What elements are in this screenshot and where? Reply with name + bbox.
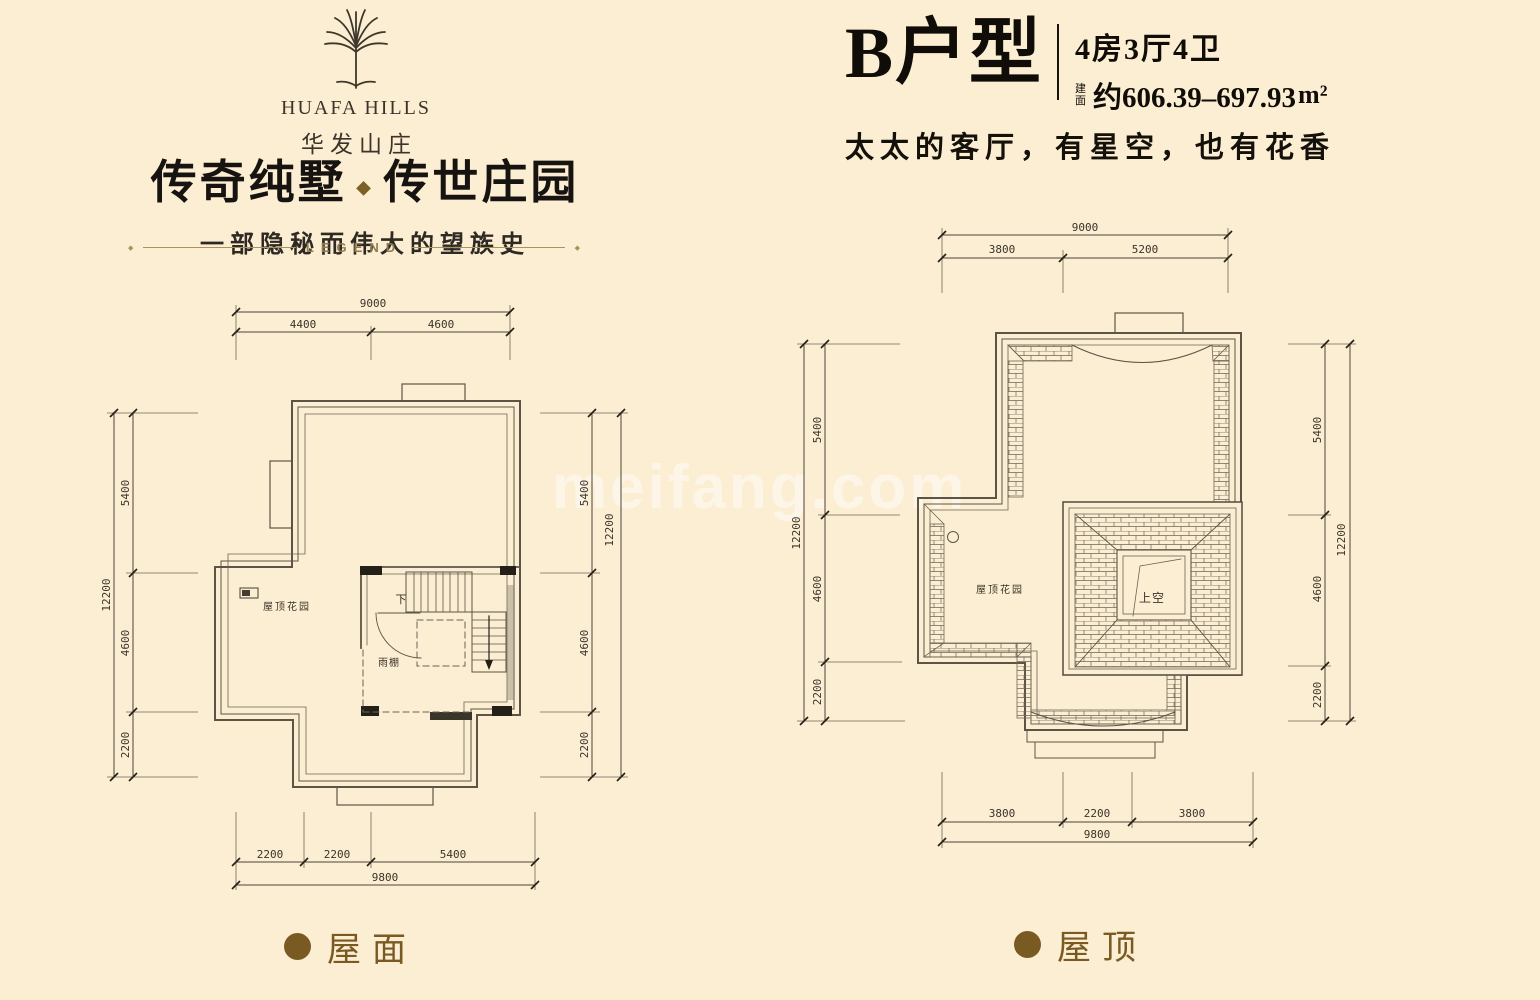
bullet-dot-icon [1014, 931, 1041, 958]
dim-label: 2200 [578, 732, 591, 759]
porch-step-2 [1035, 742, 1155, 758]
dim-label: 2200 [1084, 807, 1111, 820]
right-plan: 屋顶花园 上空 [918, 313, 1242, 758]
vertical-divider [1057, 24, 1059, 100]
unit-tagline: 太太的客厅，有星空，也有花香 [845, 124, 1335, 166]
void-label: 上空 [1139, 591, 1165, 605]
dim-label: 3800 [989, 243, 1016, 256]
slogan-left: 传奇纯墅 [151, 157, 347, 208]
skylight-mark-fill [242, 590, 250, 596]
brand-name-en: HUAFA HILLS [250, 97, 462, 120]
bullet-dot-icon [284, 933, 311, 960]
area-value: 约606.39–697.93 [1093, 74, 1296, 116]
dim-label: 4600 [119, 630, 132, 657]
porch-step-1 [1027, 730, 1163, 742]
unit-area: 建面 约606.39–697.93 m² [1075, 74, 1327, 116]
stair-arrow-head [485, 660, 493, 670]
right-plan-caption-text: 屋顶 [1057, 920, 1147, 969]
unit-rooms: 4房3厅4卫 [1075, 24, 1327, 68]
right-plan-caption: 屋顶 [1014, 920, 1147, 969]
dim-label: 9000 [360, 297, 387, 310]
dim-label: 2200 [119, 732, 132, 759]
top-eave-arc [1072, 345, 1212, 363]
area-unit: m² [1298, 80, 1327, 110]
flourish-icon: ◆ [128, 244, 133, 252]
stair-wall-hatch [507, 585, 514, 700]
rule-line [412, 247, 565, 248]
dim-label: 3800 [989, 807, 1016, 820]
legend-label: LEGEND [306, 240, 402, 255]
dim-label: 2200 [257, 848, 284, 861]
left-plan-side-bay [270, 461, 292, 528]
dim-label: 2200 [324, 848, 351, 861]
flourish-icon: ◆ [575, 244, 580, 252]
drain-circle [948, 532, 959, 543]
dim-label: 9800 [372, 871, 399, 884]
dim-label: 5400 [811, 417, 824, 444]
unit-specs: 4房3厅4卫 建面 约606.39–697.93 m² [1075, 14, 1327, 116]
right-plan-top-bump [1115, 313, 1183, 333]
column [492, 706, 512, 716]
dim-label: 5400 [1311, 417, 1324, 444]
unit-name: B户型 [845, 14, 1043, 93]
canopy-dashed-box [417, 620, 465, 666]
dim-label: 5400 [119, 480, 132, 507]
diamond-ornament-icon: ◆ [357, 177, 374, 197]
dim-label: 4600 [428, 318, 455, 331]
column [360, 566, 382, 575]
dim-label: 12200 [790, 516, 803, 549]
wall-fill [430, 712, 472, 720]
dim-label: 2200 [1311, 682, 1324, 709]
dim-label: 4400 [290, 318, 317, 331]
door-swing-arc [376, 613, 421, 658]
dim-label: 2200 [811, 679, 824, 706]
dim-label: 12200 [603, 513, 616, 546]
dim-label: 9800 [1084, 828, 1111, 841]
stair-room [360, 566, 520, 720]
left-plan-caption: 屋面 [284, 922, 417, 971]
dim-label: 4600 [578, 630, 591, 657]
legend-rule: ◆ LEGEND ◆ [128, 240, 580, 255]
column [500, 566, 516, 575]
right-garden-label: 屋顶花园 [976, 583, 1024, 596]
rule-line [143, 247, 296, 248]
left-plan-bottom-bump [337, 787, 433, 805]
slogan-right: 传世庄园 [383, 157, 579, 208]
dim-label: 4600 [811, 576, 824, 603]
left-garden-label: 屋顶花园 [263, 600, 311, 613]
column [361, 706, 379, 716]
brand-block: HUAFA HILLS 华发山庄 [250, 8, 462, 159]
stair-down-label: 下 [396, 594, 407, 606]
left-plan-top-bump [402, 384, 465, 401]
dim-label: 5400 [440, 848, 467, 861]
dim-label: 3800 [1179, 807, 1206, 820]
dim-label: 4600 [1311, 576, 1324, 603]
dim-label: 12200 [1335, 523, 1348, 556]
tree-logo-icon [317, 8, 395, 90]
left-plan-outer-wall [215, 401, 520, 787]
dim-label: 9000 [1072, 221, 1099, 234]
poster-page: meifang.com [0, 0, 1540, 1000]
left-plan-caption-text: 屋面 [327, 922, 417, 971]
pavilion-roof [1063, 502, 1242, 675]
dim-label: 5200 [1132, 243, 1159, 256]
slogan-main: 传奇纯墅◆传世庄园 [40, 146, 690, 212]
left-plan: 屋顶花园 雨棚 下 [215, 384, 520, 805]
stair-treads [414, 572, 506, 660]
unit-header: B户型 4房3厅4卫 建面 约606.39–697.93 m² [845, 14, 1328, 116]
area-label: 建面 [1075, 83, 1088, 107]
left-plan-inner-wall [221, 407, 514, 781]
dim-label: 5400 [578, 480, 591, 507]
left-canopy-label: 雨棚 [378, 656, 400, 669]
dim-label: 12200 [100, 578, 113, 611]
